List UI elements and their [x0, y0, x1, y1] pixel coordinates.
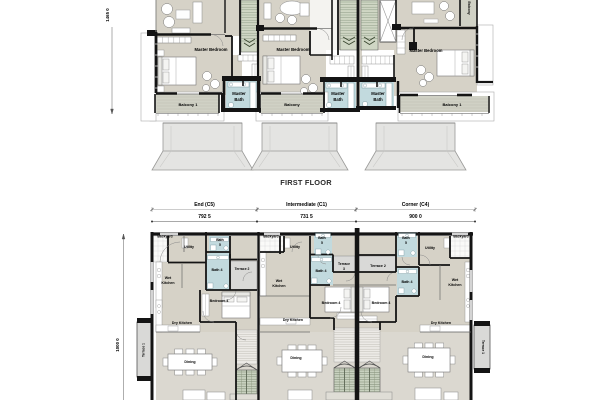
svg-text:Balcony 1: Balcony 1	[443, 102, 463, 107]
svg-text:Bath: Bath	[373, 97, 383, 102]
svg-text:Balcony: Balcony	[467, 1, 471, 14]
svg-text:Bath: Bath	[402, 236, 410, 240]
svg-text:Bath 4: Bath 4	[316, 269, 327, 273]
svg-text:Bedroom 4: Bedroom 4	[372, 301, 391, 305]
svg-text:Wet: Wet	[276, 279, 283, 283]
svg-text:1000 0: 1000 0	[115, 338, 120, 352]
svg-text:Master: Master	[331, 91, 345, 96]
svg-text:Terrace: Terrace	[338, 262, 350, 266]
svg-text:Wet: Wet	[452, 278, 459, 282]
svg-text:731 5: 731 5	[300, 214, 313, 220]
svg-text:Wet: Wet	[165, 276, 172, 280]
svg-text:Bedroom 4: Bedroom 4	[322, 301, 341, 305]
svg-text:Utility: Utility	[184, 245, 194, 249]
svg-text:Bath 4: Bath 4	[212, 268, 223, 272]
svg-text:Backyard: Backyard	[157, 235, 172, 239]
svg-text:Bath: Bath	[234, 97, 244, 102]
svg-text:Dry Kitchen: Dry Kitchen	[431, 321, 451, 325]
svg-text:Master Bedroom: Master Bedroom	[194, 47, 227, 52]
svg-text:792 5: 792 5	[198, 214, 211, 220]
svg-text:Intermediate (C1): Intermediate (C1)	[286, 202, 327, 208]
svg-text:Corner (C4): Corner (C4)	[402, 202, 430, 208]
svg-text:Master: Master	[232, 91, 246, 96]
svg-text:Master: Master	[371, 91, 385, 96]
svg-text:Utility: Utility	[425, 246, 435, 250]
svg-text:Balcony: Balcony	[284, 102, 300, 107]
svg-text:Bath 4: Bath 4	[402, 280, 413, 284]
svg-text:Backyard: Backyard	[263, 235, 278, 239]
svg-text:Kitchen: Kitchen	[161, 281, 174, 285]
svg-text:5: 5	[219, 243, 221, 247]
svg-text:Terrace 2: Terrace 2	[370, 264, 386, 268]
svg-text:Terrace 1: Terrace 1	[142, 343, 146, 357]
svg-text:Terrace 1: Terrace 1	[481, 340, 485, 354]
svg-text:Terrace 2: Terrace 2	[235, 267, 250, 271]
svg-text:Backyard: Backyard	[453, 235, 468, 239]
svg-text:Utility: Utility	[290, 245, 300, 249]
svg-text:FIRST FLOOR: FIRST FLOOR	[280, 178, 332, 187]
svg-text:Dining: Dining	[184, 360, 195, 364]
svg-text:End (C5): End (C5)	[194, 202, 215, 208]
svg-text:Dining: Dining	[290, 356, 301, 360]
svg-text:Master Bedroom: Master Bedroom	[409, 48, 442, 53]
svg-text:Dining: Dining	[422, 355, 433, 359]
svg-text:Bath: Bath	[318, 236, 326, 240]
svg-text:5: 5	[405, 241, 407, 245]
svg-text:Master Bedroom: Master Bedroom	[276, 47, 309, 52]
svg-text:Bath: Bath	[333, 97, 343, 102]
svg-text:Dry Kitchen: Dry Kitchen	[283, 318, 303, 322]
svg-text:Bath: Bath	[216, 238, 224, 242]
svg-text:Kitchen: Kitchen	[448, 283, 461, 287]
svg-text:1465 0: 1465 0	[105, 8, 110, 22]
svg-text:Balcony 1: Balcony 1	[179, 102, 199, 107]
svg-text:3: 3	[343, 267, 345, 271]
svg-text:900 0: 900 0	[409, 214, 422, 220]
svg-text:5: 5	[321, 241, 323, 245]
svg-text:Kitchen: Kitchen	[272, 284, 285, 288]
svg-text:Dry Kitchen: Dry Kitchen	[172, 321, 192, 325]
svg-text:Bedroom 4: Bedroom 4	[210, 299, 229, 303]
